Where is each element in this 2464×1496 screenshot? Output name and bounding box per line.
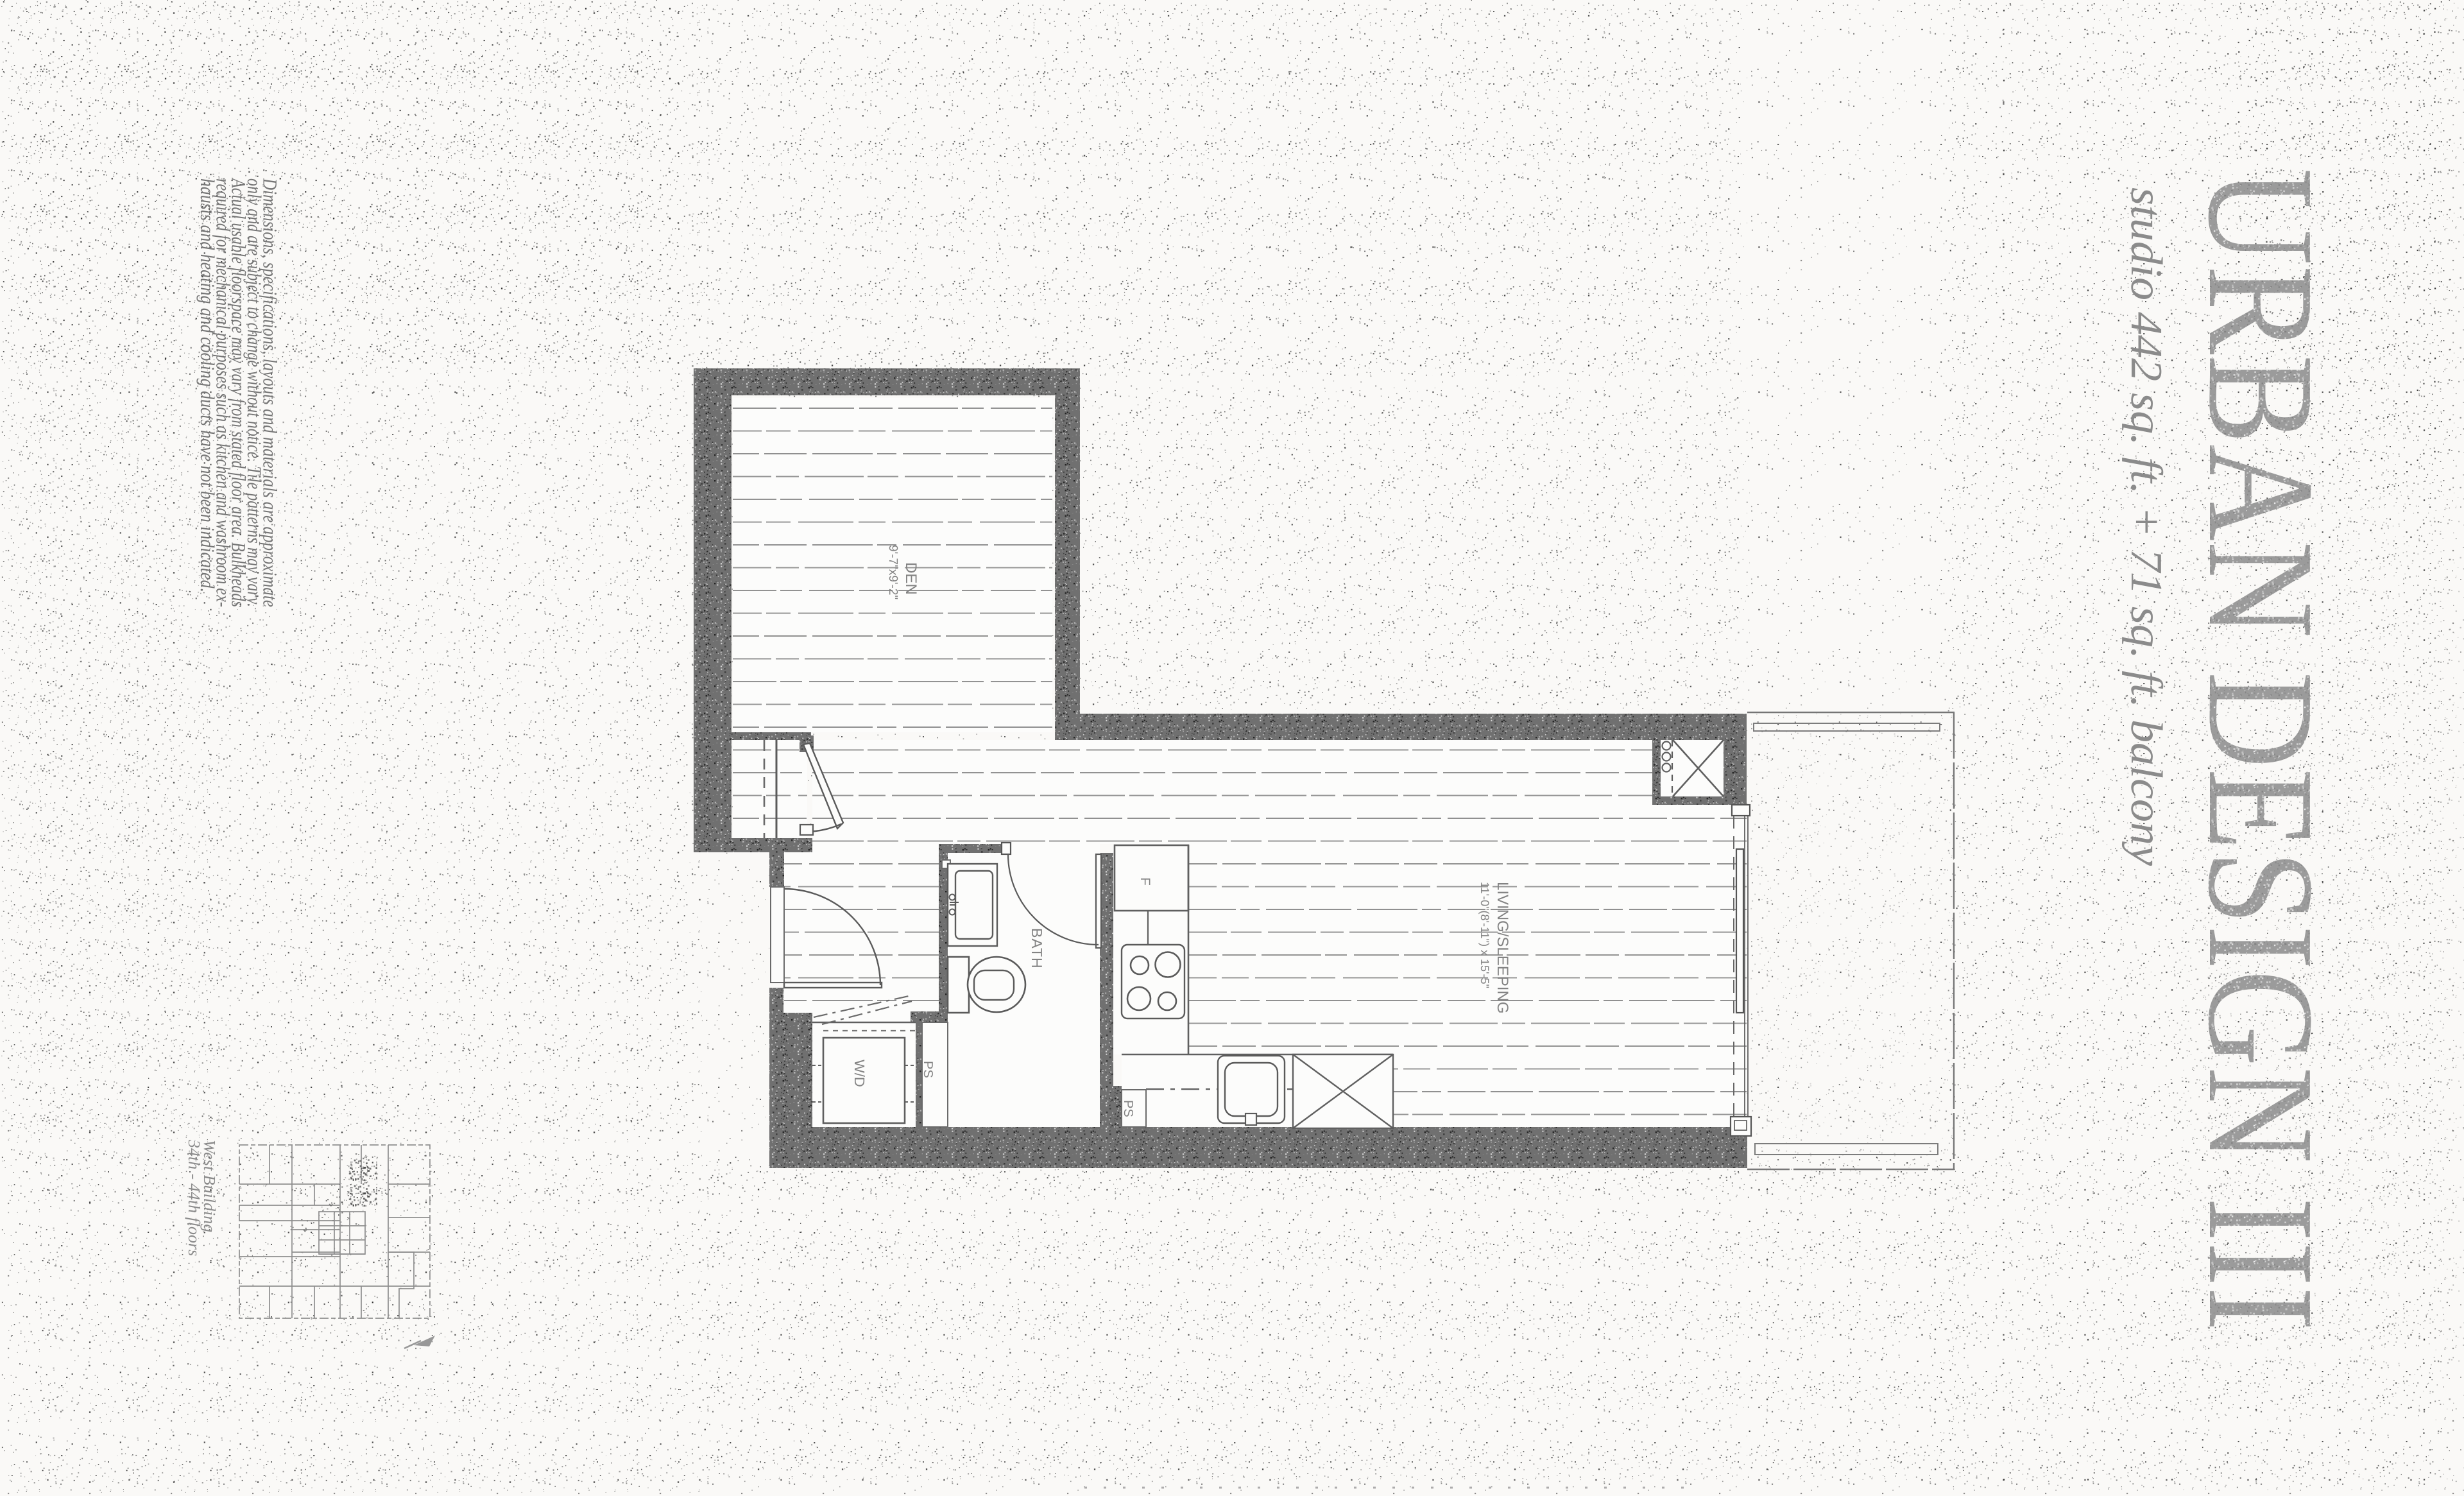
svg-text:LIVING/SLEEPING: LIVING/SLEEPING	[1494, 882, 1511, 1013]
svg-text:URBAN DESIGN III: URBAN DESIGN III	[2177, 168, 2345, 1331]
svg-text:studio 442 sq. ft. + 71 sq. ft: studio 442 sq. ft. + 71 sq. ft. balcony	[2121, 187, 2171, 866]
svg-text:PS: PS	[921, 1061, 935, 1078]
svg-text:9'-7"x9'-2": 9'-7"x9'-2"	[886, 545, 900, 599]
svg-text:11'-0"(8'-11") x 15'-5": 11'-0"(8'-11") x 15'-5"	[1478, 882, 1491, 988]
svg-text:W/D: W/D	[851, 1060, 868, 1087]
svg-text:hausts and heating and cooling: hausts and heating and cooling ducts hav…	[196, 178, 219, 592]
svg-text:PS: PS	[1121, 1100, 1135, 1117]
svg-text:34th - 44th floors: 34th - 44th floors	[185, 1139, 203, 1256]
svg-text:BATH: BATH	[1029, 928, 1045, 969]
svg-text:DEN: DEN	[902, 562, 920, 595]
svg-text:F: F	[1138, 877, 1152, 886]
